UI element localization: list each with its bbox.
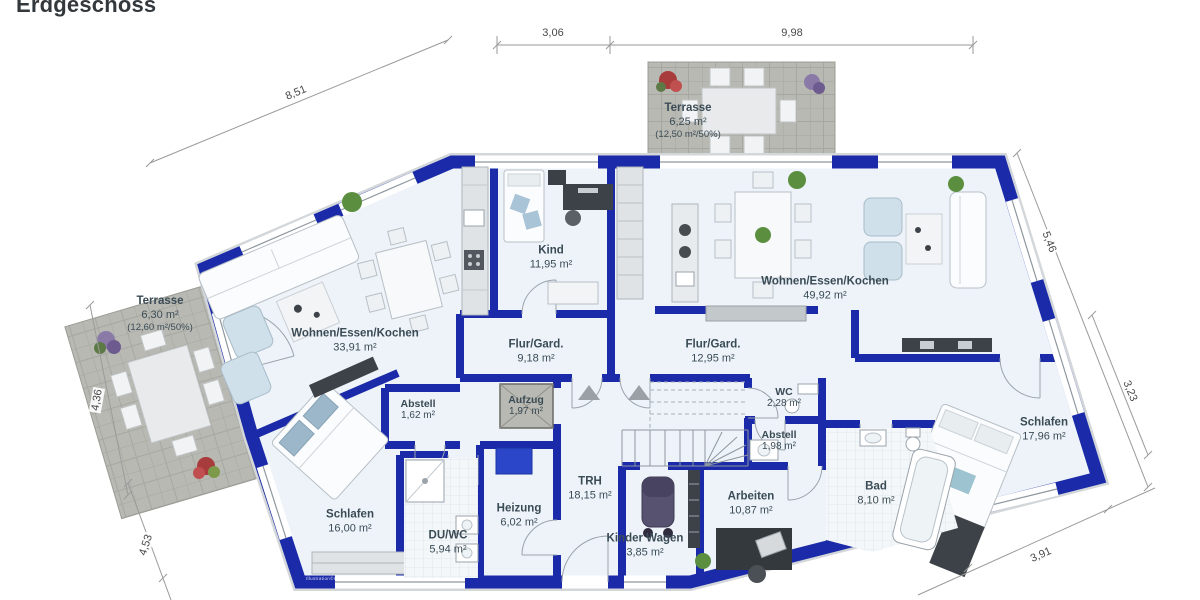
kitchen-left <box>462 167 488 315</box>
watermark: Illustration©ImmoGrafik <box>306 576 360 581</box>
elevator <box>500 384 553 428</box>
floorplan-canvas <box>0 0 1200 600</box>
plant-icon <box>342 192 362 212</box>
page-title: Erdgeschoss <box>16 0 156 18</box>
sofa-right <box>950 192 986 288</box>
terrace-top <box>648 62 835 161</box>
boiler <box>496 448 532 474</box>
floorplan-page: Erdgeschoss Terrasse 6,30 m² (12,60 m²/5… <box>0 0 1200 600</box>
desk <box>563 184 613 210</box>
